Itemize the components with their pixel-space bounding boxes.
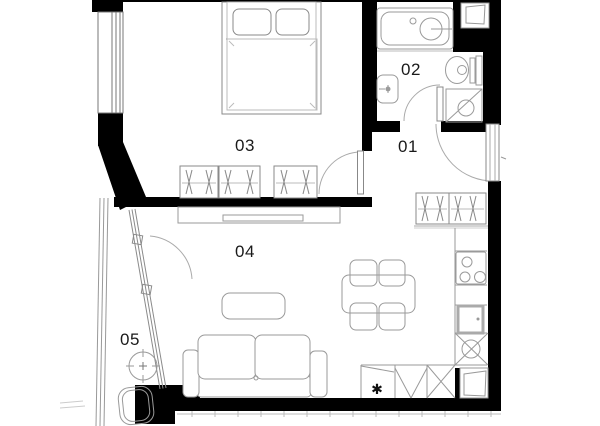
room-label-04-living-room: 04 — [235, 242, 255, 262]
room-label-05-balcony: 05 — [120, 330, 140, 350]
window-bedroom-left — [98, 12, 123, 113]
balcony-door-swing — [150, 236, 192, 279]
toilet-tank — [470, 58, 475, 83]
bedroom-wardrobes — [180, 166, 317, 198]
shower — [446, 89, 482, 122]
wall-shaft-divider — [455, 368, 460, 398]
room-label-03-bedroom: 03 — [235, 136, 255, 156]
sofa — [183, 335, 327, 397]
sofa-armrest — [310, 351, 327, 397]
wall-left-upper — [98, 113, 123, 146]
counter-flap-line — [361, 366, 394, 372]
washbasin — [377, 75, 398, 103]
sofa-armrest — [183, 350, 199, 397]
wall-top-left-block — [92, 0, 123, 12]
balcony-railing — [96, 198, 108, 426]
wall-bedroom-hall — [362, 120, 372, 151]
wall-bedroom-bathroom — [362, 0, 377, 123]
toilet — [446, 56, 483, 85]
floor-plan-drawing: ✱ — [0, 0, 600, 426]
dining-chair — [350, 303, 377, 330]
toilet-tank — [476, 56, 482, 85]
wall-right-lower — [488, 181, 501, 399]
balcony-table — [126, 349, 160, 383]
sofa-cushion — [255, 335, 310, 379]
glazed-wall-balcony — [129, 209, 166, 389]
bed — [222, 2, 321, 114]
dining-set — [342, 260, 415, 330]
corner-cabinet — [455, 333, 488, 365]
entrance-door — [436, 124, 506, 181]
bedroom-door — [319, 151, 364, 194]
bathtub — [377, 8, 453, 51]
floor-plan: ✱ — [0, 0, 600, 426]
pillow — [276, 9, 309, 35]
coffee-table — [222, 293, 285, 319]
dining-chair — [379, 260, 405, 286]
dishwasher-star-symbol: ✱ — [371, 381, 383, 397]
neighbor-balcony-lines — [60, 401, 85, 408]
dining-table — [342, 275, 415, 313]
shaft-bottom — [460, 368, 488, 398]
bathroom-door — [404, 85, 443, 121]
stove — [456, 252, 486, 284]
kitchen-sink — [458, 306, 483, 333]
tv-sideboard — [178, 207, 340, 223]
door-handle-mark — [501, 157, 506, 159]
wall-right-upper — [483, 52, 501, 125]
facade-line — [177, 411, 501, 417]
room-label-01-hall: 01 — [398, 137, 418, 157]
dining-chair — [350, 260, 377, 286]
wall-bathroom-south-right — [441, 121, 487, 132]
wall-bathroom-south-left — [372, 121, 400, 132]
dining-chair — [379, 303, 405, 330]
tv — [223, 215, 303, 221]
shaft-top — [461, 3, 489, 28]
room-label-02-bathroom: 02 — [401, 60, 421, 80]
hall-wardrobe — [414, 193, 488, 228]
kitchen-counter-right — [455, 228, 487, 365]
pillow — [233, 9, 271, 35]
sofa-cushion — [198, 335, 256, 379]
